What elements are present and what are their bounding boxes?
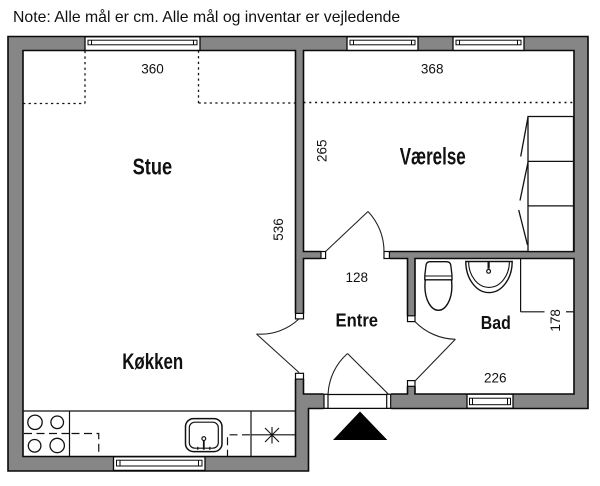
svg-text:226: 226 <box>484 371 507 386</box>
svg-text:360: 360 <box>141 62 164 77</box>
svg-text:Køkken: Køkken <box>122 349 183 374</box>
svg-text:Stue: Stue <box>133 154 173 180</box>
svg-text:536: 536 <box>271 218 286 241</box>
svg-text:Værelse: Værelse <box>400 144 466 171</box>
svg-text:Note: Alle mål er cm. Alle mål: Note: Alle mål er cm. Alle mål og invent… <box>13 8 400 26</box>
svg-text:Bad: Bad <box>481 313 511 333</box>
svg-text:265: 265 <box>314 139 329 162</box>
svg-text:128: 128 <box>346 270 369 285</box>
svg-text:178: 178 <box>548 309 563 332</box>
svg-text:Entre: Entre <box>336 310 379 330</box>
svg-text:368: 368 <box>421 62 444 77</box>
